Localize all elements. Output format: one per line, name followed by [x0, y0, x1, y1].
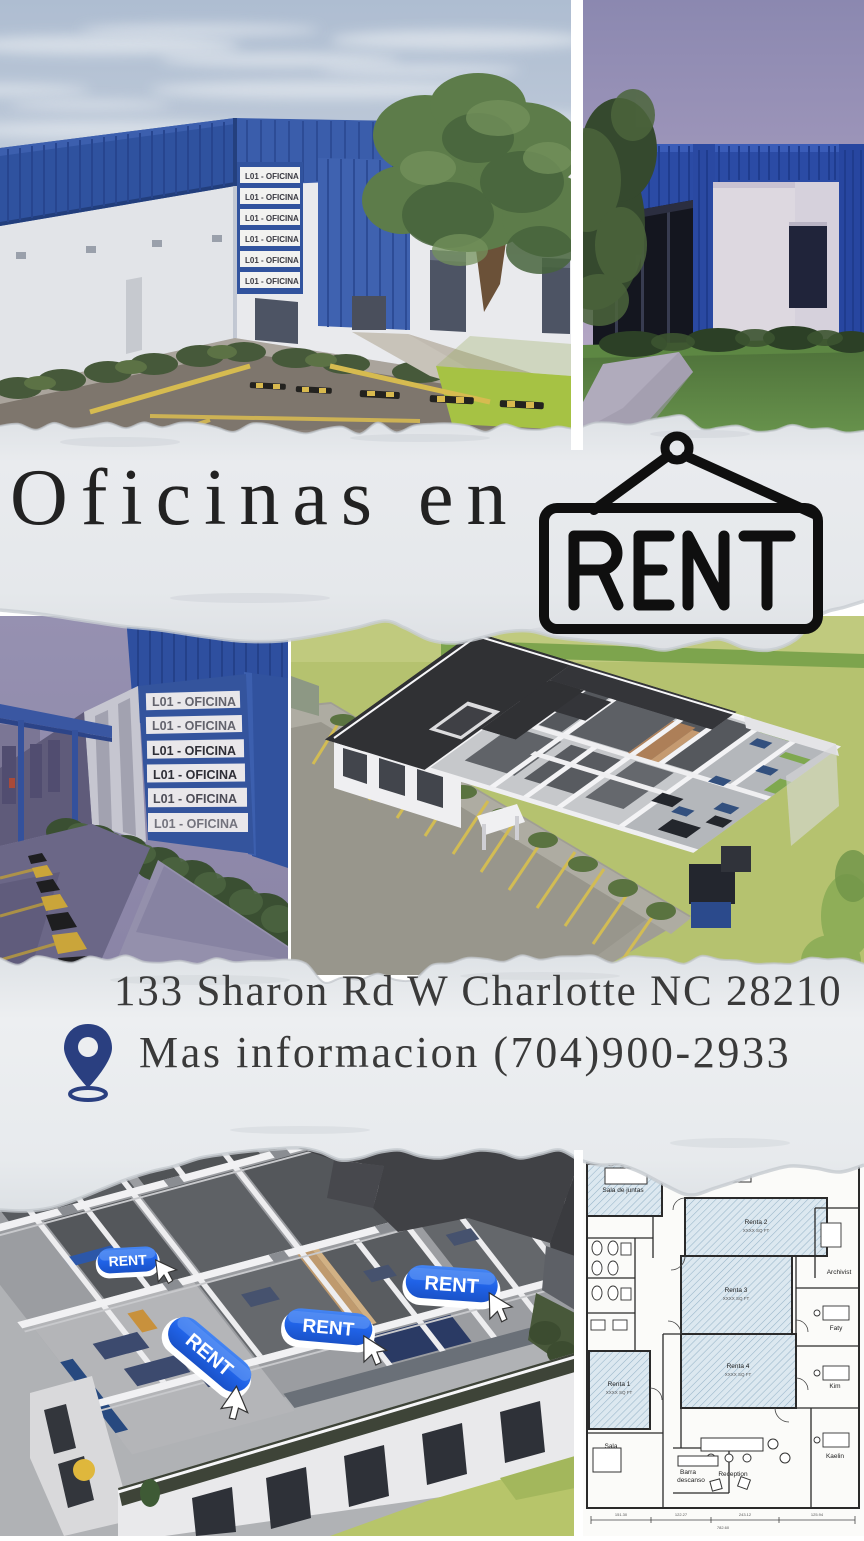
svg-text:151.30: 151.30 — [615, 1512, 628, 1517]
svg-text:L01 - OFICINA: L01 - OFICINA — [152, 695, 236, 709]
svg-text:Renta 4: Renta 4 — [727, 1363, 750, 1370]
svg-text:122.27: 122.27 — [675, 1512, 688, 1517]
svg-text:L01 - OFICINA: L01 - OFICINA — [152, 719, 236, 733]
svg-text:Archivist: Archivist — [827, 1269, 852, 1276]
svg-text:782.60: 782.60 — [717, 1525, 730, 1530]
svg-text:XXXX SQ FT: XXXX SQ FT — [606, 1390, 633, 1395]
svg-text:L01 - OFICINA: L01 - OFICINA — [153, 768, 237, 782]
svg-text:L01 - OFICINA: L01 - OFICINA — [245, 256, 299, 265]
svg-text:L01 - OFICINA: L01 - OFICINA — [153, 792, 237, 806]
svg-text:L01 - OFICINA: L01 - OFICINA — [245, 172, 299, 181]
svg-text:XXXX SQ FT: XXXX SQ FT — [723, 1296, 750, 1301]
svg-text:Barra: Barra — [680, 1469, 696, 1476]
svg-text:L01 - OFICINA: L01 - OFICINA — [245, 277, 299, 286]
svg-text:L01 - OFICINA: L01 - OFICINA — [154, 817, 238, 831]
svg-text:L01 - OFICINA: L01 - OFICINA — [245, 193, 299, 202]
svg-text:L01 - OFICINA: L01 - OFICINA — [245, 235, 299, 244]
svg-text:L01 - OFICINA: L01 - OFICINA — [245, 214, 299, 223]
svg-text:descanso: descanso — [677, 1477, 705, 1484]
svg-text:XXXX SQ FT: XXXX SQ FT — [725, 1372, 752, 1377]
svg-text:Renta 3: Renta 3 — [725, 1287, 748, 1294]
svg-text:243.12: 243.12 — [739, 1512, 752, 1517]
svg-text:Kaelin: Kaelin — [826, 1453, 844, 1460]
svg-text:Faty: Faty — [830, 1325, 843, 1332]
svg-text:Kim: Kim — [829, 1383, 840, 1390]
svg-text:Reception: Reception — [718, 1471, 748, 1478]
svg-text:125.94: 125.94 — [811, 1512, 824, 1517]
svg-text:RENT: RENT — [108, 1251, 147, 1269]
svg-text:L01 - OFICINA: L01 - OFICINA — [152, 744, 236, 758]
svg-text:RENT: RENT — [424, 1272, 480, 1298]
svg-text:Renta 1: Renta 1 — [608, 1381, 631, 1388]
